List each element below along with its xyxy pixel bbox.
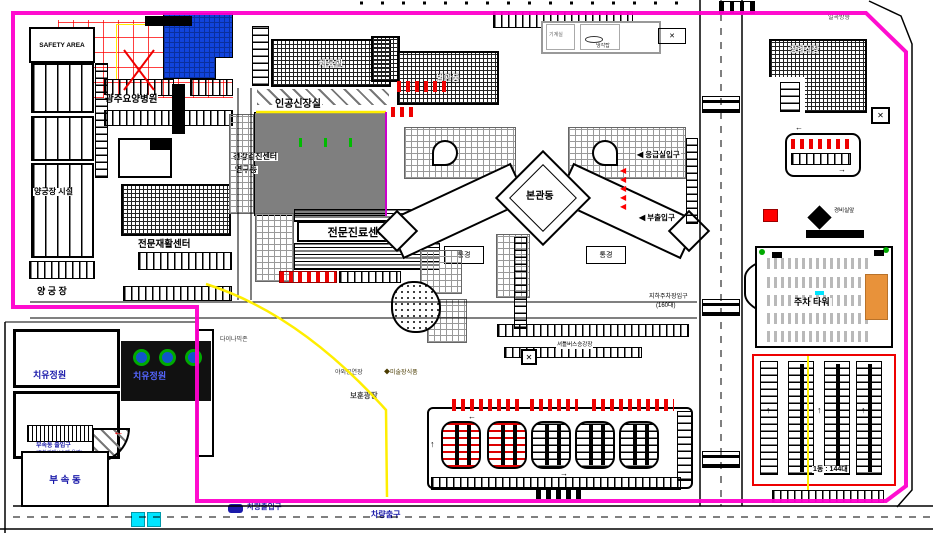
lot1-arrow: ↑ — [861, 406, 866, 415]
er-entrance-label: ◀ 응급실입구 — [636, 151, 681, 159]
archery-facility-building — [31, 163, 94, 258]
x-mark-icon: ✕ — [669, 32, 675, 40]
highlight-yellow-outline — [116, 24, 168, 80]
lot1-parking-column — [788, 361, 814, 475]
parking-strip — [677, 411, 692, 481]
healing-garden-label: 치유정원 — [133, 372, 166, 381]
annex-label: 부 속 동 — [49, 472, 81, 486]
tower-car-mark — [772, 252, 782, 258]
red-arrow-stack: ◀ ◀ ◀ ◀ ◀ — [620, 166, 626, 211]
garden-curl — [432, 140, 458, 166]
green-vent — [299, 138, 302, 147]
red-car-row — [452, 399, 522, 411]
parking-strip — [123, 286, 232, 301]
parking-strip — [29, 261, 95, 279]
red-car-row — [397, 81, 451, 92]
red-entry-arrow: ← — [113, 427, 124, 439]
building-notch — [215, 57, 233, 79]
arrow-right-icon: → — [560, 469, 568, 478]
courtyard-grid — [229, 114, 254, 214]
guard-room-label: 경비실앞 — [833, 209, 855, 215]
lot1-parking-column — [856, 361, 882, 475]
art-sculpture-text: 미술장식품 — [390, 370, 418, 376]
left-ward-building — [31, 63, 94, 113]
crosswalk — [702, 96, 740, 113]
main-building-label: 본관동 — [526, 192, 554, 203]
tower-corner-mark — [759, 249, 765, 255]
sub-entrance-text: 부출입구 — [647, 213, 675, 222]
red-car-row — [530, 399, 578, 411]
spine-walk — [514, 237, 527, 329]
bay-arrow: → — [838, 166, 846, 174]
left-ward-building — [31, 116, 94, 161]
stair-strip — [252, 26, 269, 86]
tower-parking-row — [767, 331, 869, 342]
annex-hall-wing — [371, 36, 400, 82]
arrow-up-icon: ↑ — [817, 405, 822, 415]
archery-facility-label: 양궁장 시설 — [33, 188, 74, 196]
arrow-left-icon: ← — [468, 412, 476, 421]
archery-field-label: 양 궁 장 — [36, 287, 68, 296]
safety-area-label: SAFETY AREA — [39, 42, 85, 49]
red-arrow-icon: ◀ — [620, 166, 626, 175]
safety-area-box: SAFETY AREA — [29, 27, 95, 63]
annex-building: 부 속 동 — [21, 451, 109, 507]
nursing-hospital-label: 광주요양병원 — [104, 95, 158, 105]
parking-island — [531, 421, 571, 469]
kidney-room-label: 인공신장실 — [274, 100, 322, 111]
tower-orange-block — [865, 274, 888, 320]
shuttle-stop-label: 셔틀버스승강장 — [556, 343, 593, 349]
x-mark-icon: ✕ — [877, 111, 884, 120]
parking-tower-label: 주차 타워 — [792, 298, 832, 307]
red-car-row — [592, 399, 674, 411]
tree — [133, 349, 150, 366]
green-vent — [349, 138, 352, 147]
lot-arrow: ← — [468, 413, 476, 421]
parking-island — [441, 421, 481, 469]
arrow-up-icon: ↑ — [766, 405, 771, 415]
car-glyph — [228, 504, 243, 513]
lot1-parking-column — [824, 361, 850, 475]
crosswalk — [702, 299, 740, 316]
green-vent — [324, 138, 327, 147]
gate-diamond — [807, 205, 831, 229]
garden-pond — [391, 281, 441, 333]
stair-strip — [95, 63, 108, 178]
arrow-up-icon: ↑ — [861, 405, 866, 415]
cooling-tower-label: 냉각탑 — [596, 44, 610, 49]
er-entrance-text: 응급실입구 — [645, 150, 680, 159]
direction-label: 일곡방향 — [828, 15, 850, 21]
arrow-left-icon: ◀ — [639, 213, 645, 222]
lot1-count-label: 1동 : 144대 — [812, 466, 849, 473]
parking-island — [575, 421, 615, 469]
x-box: ✕ — [871, 107, 890, 124]
lot1-arrow: ↑ — [766, 406, 771, 415]
entrance-shaft — [172, 84, 185, 134]
sub-entrance-label: ◀ 부출입구 — [638, 214, 676, 222]
parking-strip — [190, 79, 233, 96]
bus-stop-block — [147, 512, 161, 527]
tower-parking-row — [767, 258, 869, 269]
red-arrow-icon: ◀ — [620, 175, 626, 184]
garden-curl — [592, 140, 618, 166]
healing-garden-label: 치유정원 — [32, 371, 67, 380]
tree — [159, 349, 176, 366]
management-roof-bar — [150, 138, 172, 150]
parking-strip — [339, 271, 401, 283]
funeral-hall-label: 장례식장 — [790, 46, 819, 54]
red-car-row — [391, 107, 418, 117]
red-car-row — [279, 271, 337, 283]
plaza-label: 보훈광장 — [350, 392, 378, 400]
gate-box: ✕ — [521, 349, 537, 365]
arrow-left-icon: ← — [113, 426, 124, 438]
bus-stop-block — [131, 512, 145, 527]
gate-teeth — [536, 487, 582, 499]
parking-island — [619, 421, 659, 469]
machine-room-label: 기계실 — [549, 33, 563, 38]
annex-hall-building: 별관동 — [397, 51, 499, 105]
bay-arrow: ← — [795, 124, 803, 132]
arrow-right-icon: → — [838, 165, 846, 174]
tower-cyan-mark — [815, 291, 824, 295]
red-arrow-icon: ◀ — [620, 184, 626, 193]
annex-entrance-label: 부속동 출입구 — [36, 443, 71, 449]
lot-arrow: → — [560, 470, 568, 478]
gate-bar — [806, 230, 864, 238]
x-mark-icon: ✕ — [526, 353, 533, 362]
lot-arrow: ↑ — [430, 440, 435, 449]
roof-bar — [145, 16, 192, 26]
walkway-strip — [497, 324, 689, 337]
underground-parking-count: (160대) — [655, 303, 677, 309]
underground-parking-label: 지하주차장입구 — [648, 294, 689, 300]
tower-car-mark — [874, 250, 884, 256]
stair-strip — [27, 425, 93, 442]
site-plan-canvas: 광주요양병원 SAFETY AREA 양궁장 시설 양 궁 장 전문재활센터 체… — [0, 0, 933, 535]
arrow-left-icon: ← — [795, 123, 803, 132]
court-box-right: 통경 — [586, 246, 626, 264]
parking-strip — [772, 490, 884, 503]
lot1-arrow: ↑ — [817, 406, 822, 415]
tree — [185, 349, 202, 366]
median-strip — [686, 138, 698, 224]
small-plant-building: ✕ — [658, 28, 686, 44]
lot1-parking-column — [760, 361, 778, 475]
chimney-oval — [585, 36, 603, 43]
parking-strip — [791, 153, 851, 165]
tower-parking-row — [767, 277, 869, 288]
red-arrow-icon: ◀ — [620, 202, 626, 211]
red-arrow-icon: ◀ — [620, 193, 626, 202]
stair-strip — [780, 82, 800, 112]
parking-strip — [104, 110, 233, 126]
guard-red-box — [763, 209, 778, 222]
court-right-label: 통경 — [600, 250, 613, 260]
vehicle-exit-label: 차량출구 — [370, 511, 401, 519]
kidney-room-building — [254, 112, 386, 216]
arrow-up-icon: ↑ — [430, 439, 435, 449]
gym-label: 체육관 — [319, 57, 344, 70]
vehicle-gate-label: 차량출입구 — [246, 503, 283, 511]
red-car-row — [791, 139, 851, 149]
outdoor-stage-label: 야외공연장 — [335, 370, 363, 376]
art-sculpture-label: ◆미술장식품 — [384, 370, 418, 376]
rehab-center-label: 전문재활센터 — [137, 240, 191, 250]
crosswalk — [702, 451, 740, 468]
parking-island — [487, 421, 527, 469]
dynamic-zone-label: 다이나믹존 — [220, 337, 248, 343]
crosswalk — [719, 1, 755, 14]
tower-parking-row — [767, 313, 869, 324]
rehab-center-building — [121, 184, 231, 236]
arrow-left-icon: ◀ — [637, 150, 643, 159]
parking-strip — [138, 252, 232, 270]
